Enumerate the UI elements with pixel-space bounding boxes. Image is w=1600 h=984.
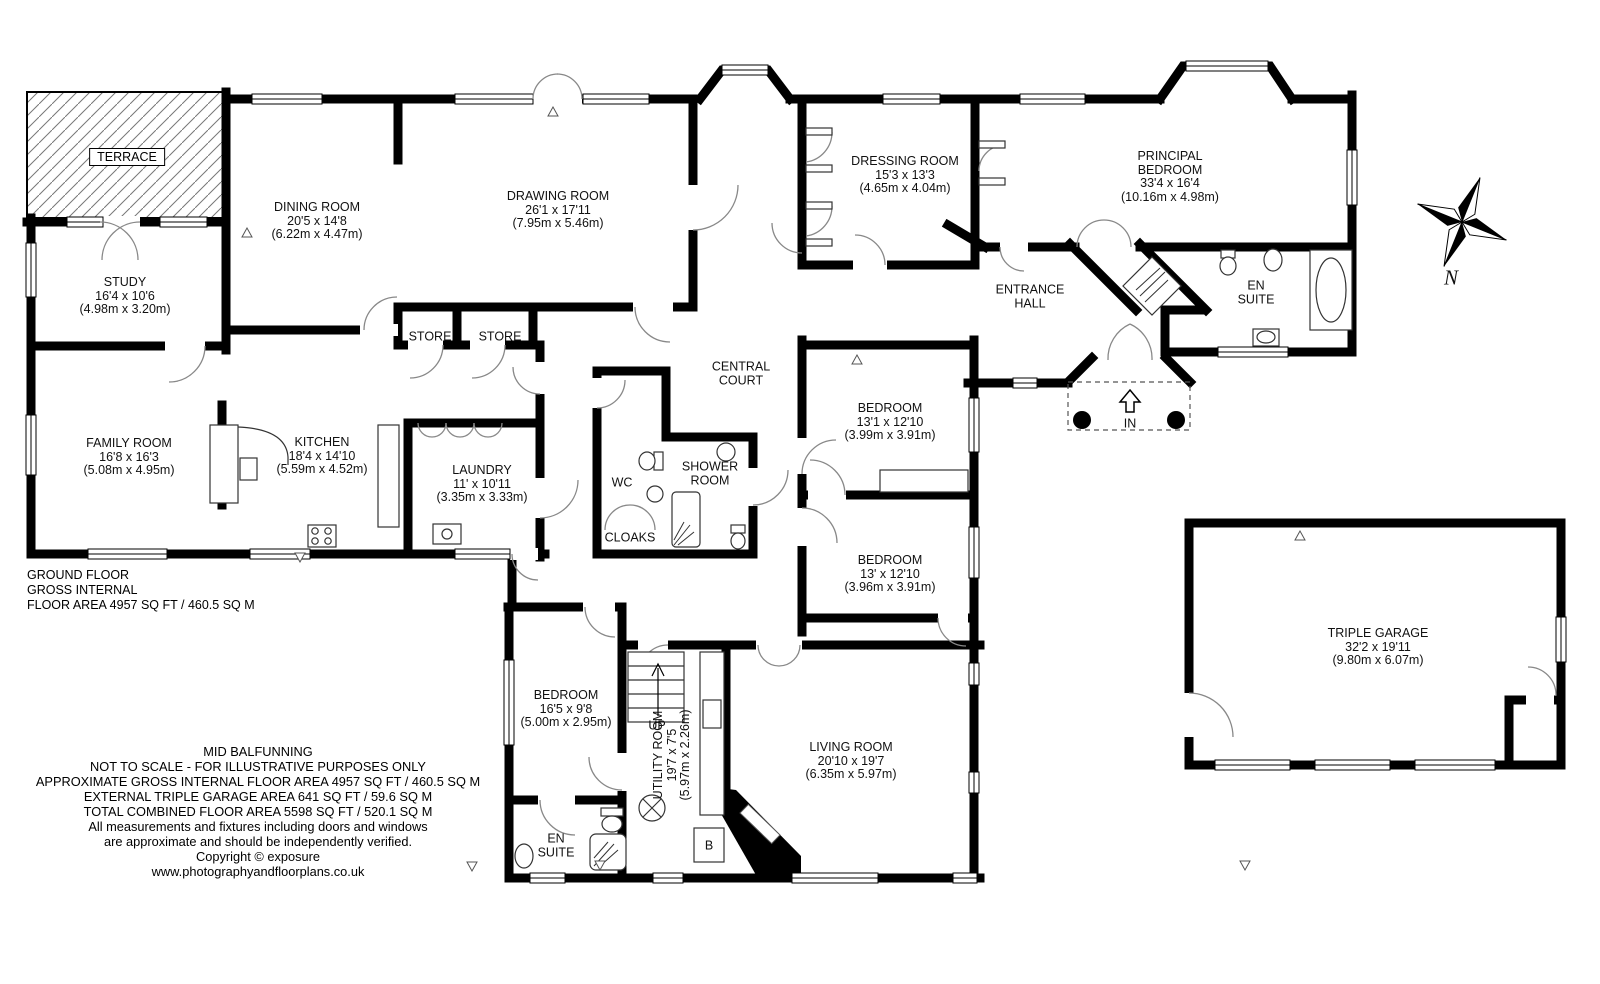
basin-icon [647, 486, 663, 502]
footer-notes: MID BALFUNNING NOT TO SCALE - FOR ILLUST… [8, 744, 508, 879]
room-label-dressing-room: DRESSING ROOM 15'3 x 13'3 (4.65m x 4.04m… [851, 155, 959, 196]
toilet-icon [639, 452, 663, 470]
in-arrow-icon [1120, 390, 1140, 412]
room-label-study: STUDY 16'4 x 10'6 (4.98m x 3.20m) [79, 276, 170, 317]
room-label-principal-bedroom: PRINCIPAL BEDROOM 33'4 x 16'4 (10.16m x … [1120, 150, 1220, 204]
room-label-shower-room: SHOWER ROOM [675, 461, 745, 488]
room-label-dining-room: DINING ROOM 20'5 x 14'8 (6.22m x 4.47m) [271, 201, 362, 242]
room-label-family-room: FAMILY ROOM 16'8 x 16'3 (5.08m x 4.95m) [83, 437, 174, 478]
room-label-en-suite-guest: EN SUITE [532, 833, 580, 860]
room-label-triple-garage: TRIPLE GARAGE 32'2 x 19'11 (9.80m x 6.07… [1328, 627, 1429, 668]
room-label-cloaks: CLOAKS [605, 531, 656, 545]
up-marker: UP [648, 719, 665, 733]
property-name: MID BALFUNNING [8, 744, 508, 759]
compass-icon [1400, 160, 1525, 285]
floorplan-page: TERRACE STUDY 16'4 x 10'6 (4.98m x 3.20m… [0, 0, 1600, 984]
boiler-marker: B [705, 839, 713, 853]
stove-icon [308, 525, 336, 547]
room-label-bedroom-4: BEDROOM 16'5 x 9'8 (5.00m x 2.95m) [520, 689, 611, 730]
room-label-laundry: LAUNDRY 11' x 10'11 (3.35m x 3.33m) [436, 464, 527, 505]
room-label-bedroom-2: BEDROOM 13'1 x 12'10 (3.99m x 3.91m) [844, 402, 935, 443]
shower-tray-icon [672, 492, 700, 547]
room-label-central-court: CENTRAL COURT [701, 361, 781, 388]
north-label: N [1444, 271, 1458, 285]
room-label-living-room: LIVING ROOM 20'10 x 19'7 (6.35m x 5.97m) [805, 741, 896, 782]
in-marker: IN [1124, 417, 1137, 431]
floor-summary: GROUND FLOOR GROSS INTERNAL FLOOR AREA 4… [27, 568, 255, 613]
bath-icon [1310, 250, 1352, 330]
footer-website: www.photographyandfloorplans.co.uk [8, 864, 508, 879]
room-label-bedroom-3: BEDROOM 13' x 12'10 (3.96m x 3.91m) [844, 554, 935, 595]
room-label-store-1: STORE [409, 330, 452, 344]
room-label-store-2: STORE [479, 330, 522, 344]
room-label-kitchen: KITCHEN 18'4 x 14'10 (5.59m x 4.52m) [276, 436, 367, 477]
fireplace [720, 788, 801, 882]
room-label-drawing-room: DRAWING ROOM 26'1 x 17'11 (7.95m x 5.46m… [507, 190, 609, 231]
shower-tray-icon [590, 834, 626, 870]
room-label-en-suite-principal: EN SUITE [1232, 280, 1280, 307]
room-label-wc: WC [612, 476, 633, 490]
room-label-entrance-hall: ENTRANCE HALL [985, 284, 1075, 311]
terrace-label: TERRACE [89, 148, 165, 166]
